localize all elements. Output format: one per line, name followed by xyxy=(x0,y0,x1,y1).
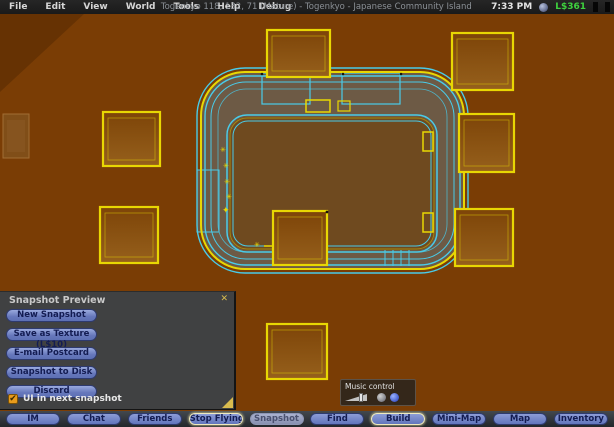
volume-slider-thumb[interactable] xyxy=(359,393,363,402)
menu-view[interactable]: View xyxy=(74,0,116,14)
prim-box-top-center[interactable] xyxy=(267,30,330,77)
save-as-texture-button[interactable]: Save as Texture (L$10) xyxy=(6,328,97,341)
mini-map-button[interactable]: Mini-Map xyxy=(432,413,486,425)
email-postcard-button[interactable]: E-mail Postcard xyxy=(6,347,97,360)
titlebar-block-icon xyxy=(605,2,610,12)
wireframe-building[interactable]: ✳ ✳ ✳ ✳ ✦ ✳ xyxy=(197,68,468,273)
inventory-button[interactable]: Inventory xyxy=(554,413,608,425)
map-button[interactable]: Map xyxy=(493,413,547,425)
snapshot-button[interactable]: Snapshot xyxy=(250,413,304,425)
prim-box-left-upper[interactable] xyxy=(103,112,160,166)
ui-in-snapshot-checkbox[interactable]: ✔ xyxy=(8,394,18,404)
viewer-window: ✳ ✳ ✳ ✳ ✦ ✳ xyxy=(0,0,614,427)
svg-text:✦: ✦ xyxy=(222,206,230,216)
stop-flying-button[interactable]: Stop Flying xyxy=(189,413,243,425)
ui-in-snapshot-label: UI in next snapshot xyxy=(23,394,122,404)
close-icon[interactable]: ✕ xyxy=(220,294,228,304)
menu-file[interactable]: File xyxy=(0,0,36,14)
chat-button[interactable]: Chat xyxy=(67,413,121,425)
music-control-panel: Music control xyxy=(340,379,416,406)
im-button[interactable]: IM xyxy=(6,413,60,425)
music-play-icon[interactable] xyxy=(390,393,399,402)
prim-box-right-lower[interactable] xyxy=(455,209,513,266)
location-title: Togenkyo 118, 132, 71 (Mature) - Togenky… xyxy=(161,0,472,14)
porch-right xyxy=(342,73,400,104)
friends-button[interactable]: Friends xyxy=(128,413,182,425)
courtyard xyxy=(229,117,435,250)
ui-in-snapshot-row: ✔ UI in next snapshot xyxy=(8,394,122,404)
svg-text:✳: ✳ xyxy=(224,178,230,186)
status-icon xyxy=(539,3,548,12)
clock: 7:33 PM xyxy=(491,2,532,12)
menu-bar: File Edit View World Tools Help Debug To… xyxy=(0,0,614,14)
music-pause-icon[interactable] xyxy=(377,393,386,402)
prim-box-bottom-center[interactable] xyxy=(267,324,327,379)
build-button[interactable]: Build xyxy=(371,413,425,425)
prim-box-top-right[interactable] xyxy=(452,33,513,90)
find-button[interactable]: Find xyxy=(310,413,364,425)
svg-text:✳: ✳ xyxy=(226,193,232,201)
volume-slider[interactable] xyxy=(345,393,373,402)
prim-box-courtyard[interactable] xyxy=(273,211,328,265)
volume-wedge-icon xyxy=(345,394,367,401)
prim-box-left-lower[interactable] xyxy=(100,207,158,263)
menu-edit[interactable]: Edit xyxy=(36,0,74,14)
music-control-title: Music control xyxy=(345,382,411,391)
resize-handle-icon[interactable] xyxy=(222,397,233,408)
floater-title: Snapshot Preview xyxy=(9,295,105,306)
menu-world[interactable]: World xyxy=(117,0,165,14)
snapshot-preview-floater: Snapshot Preview ✕ New Snapshot Save as … xyxy=(0,291,236,410)
svg-text:✳: ✳ xyxy=(223,162,229,170)
currency-balance[interactable]: L$361 xyxy=(555,2,586,12)
new-snapshot-button[interactable]: New Snapshot xyxy=(6,309,97,322)
snapshot-to-disk-button[interactable]: Snapshot to Disk xyxy=(6,366,97,379)
svg-text:✳: ✳ xyxy=(220,146,226,154)
titlebar-block-icon xyxy=(593,2,598,12)
svg-text:✳: ✳ xyxy=(254,241,260,249)
bottom-toolbar: IM Chat Friends Stop Flying Snapshot Fin… xyxy=(0,411,614,427)
wall-poster xyxy=(3,114,29,158)
prim-box-right-mid[interactable] xyxy=(459,114,514,172)
